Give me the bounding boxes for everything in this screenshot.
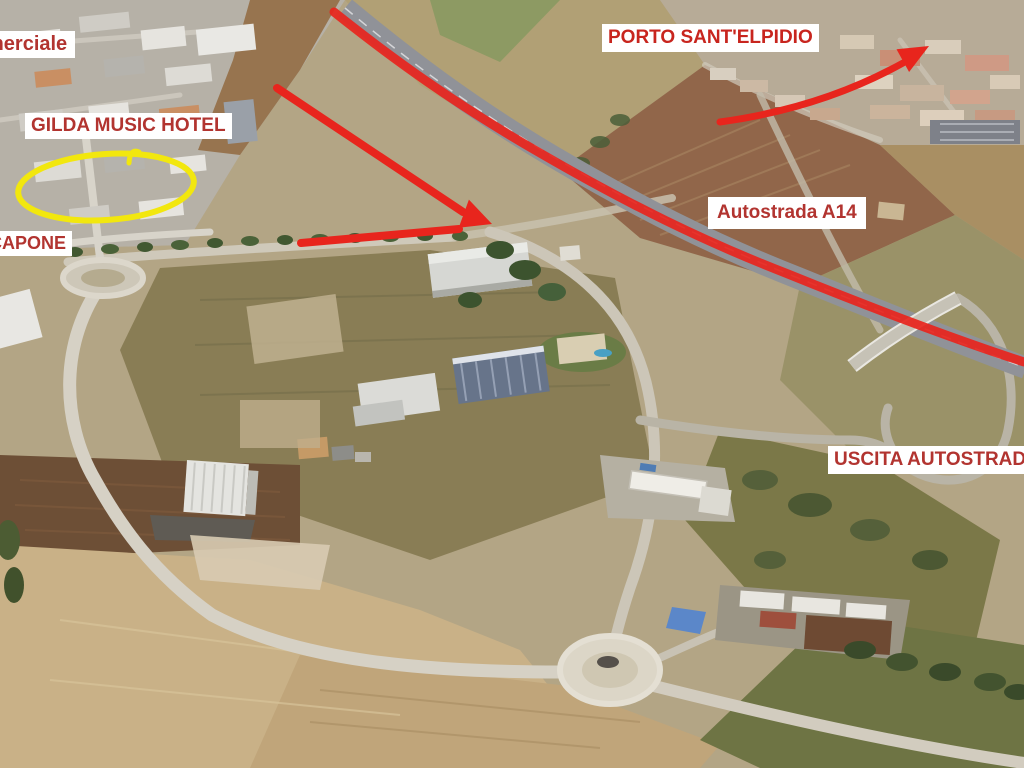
hotel-highlight-ellipse-outline bbox=[16, 148, 196, 226]
label-porto-sant-elpidio: PORTO SANT'ELPIDIO bbox=[602, 24, 819, 52]
label-commerciale: merciale bbox=[0, 31, 75, 58]
destination-arrow-curve bbox=[720, 63, 903, 122]
route-arrow bbox=[277, 88, 492, 243]
route-arrow-lower-segment bbox=[301, 229, 459, 243]
label-gilda-music-hotel: GILDA MUSIC HOTEL bbox=[25, 113, 232, 139]
hotel-highlight-ellipse bbox=[16, 148, 196, 226]
highway-route-line bbox=[334, 12, 1024, 362]
label-uscita-autostrada: USCITA AUTOSTRADA bbox=[828, 446, 1024, 474]
destination-arrow-head bbox=[897, 46, 930, 72]
label-autostrada-a14: Autostrada A14 bbox=[708, 197, 866, 229]
destination-arrow bbox=[720, 46, 929, 122]
label-capone: CAPONE bbox=[0, 231, 72, 256]
map-screenshot: merciale GILDA MUSIC HOTEL CAPONE PORTO … bbox=[0, 0, 1024, 768]
route-arrow-upper-segment bbox=[277, 88, 463, 212]
